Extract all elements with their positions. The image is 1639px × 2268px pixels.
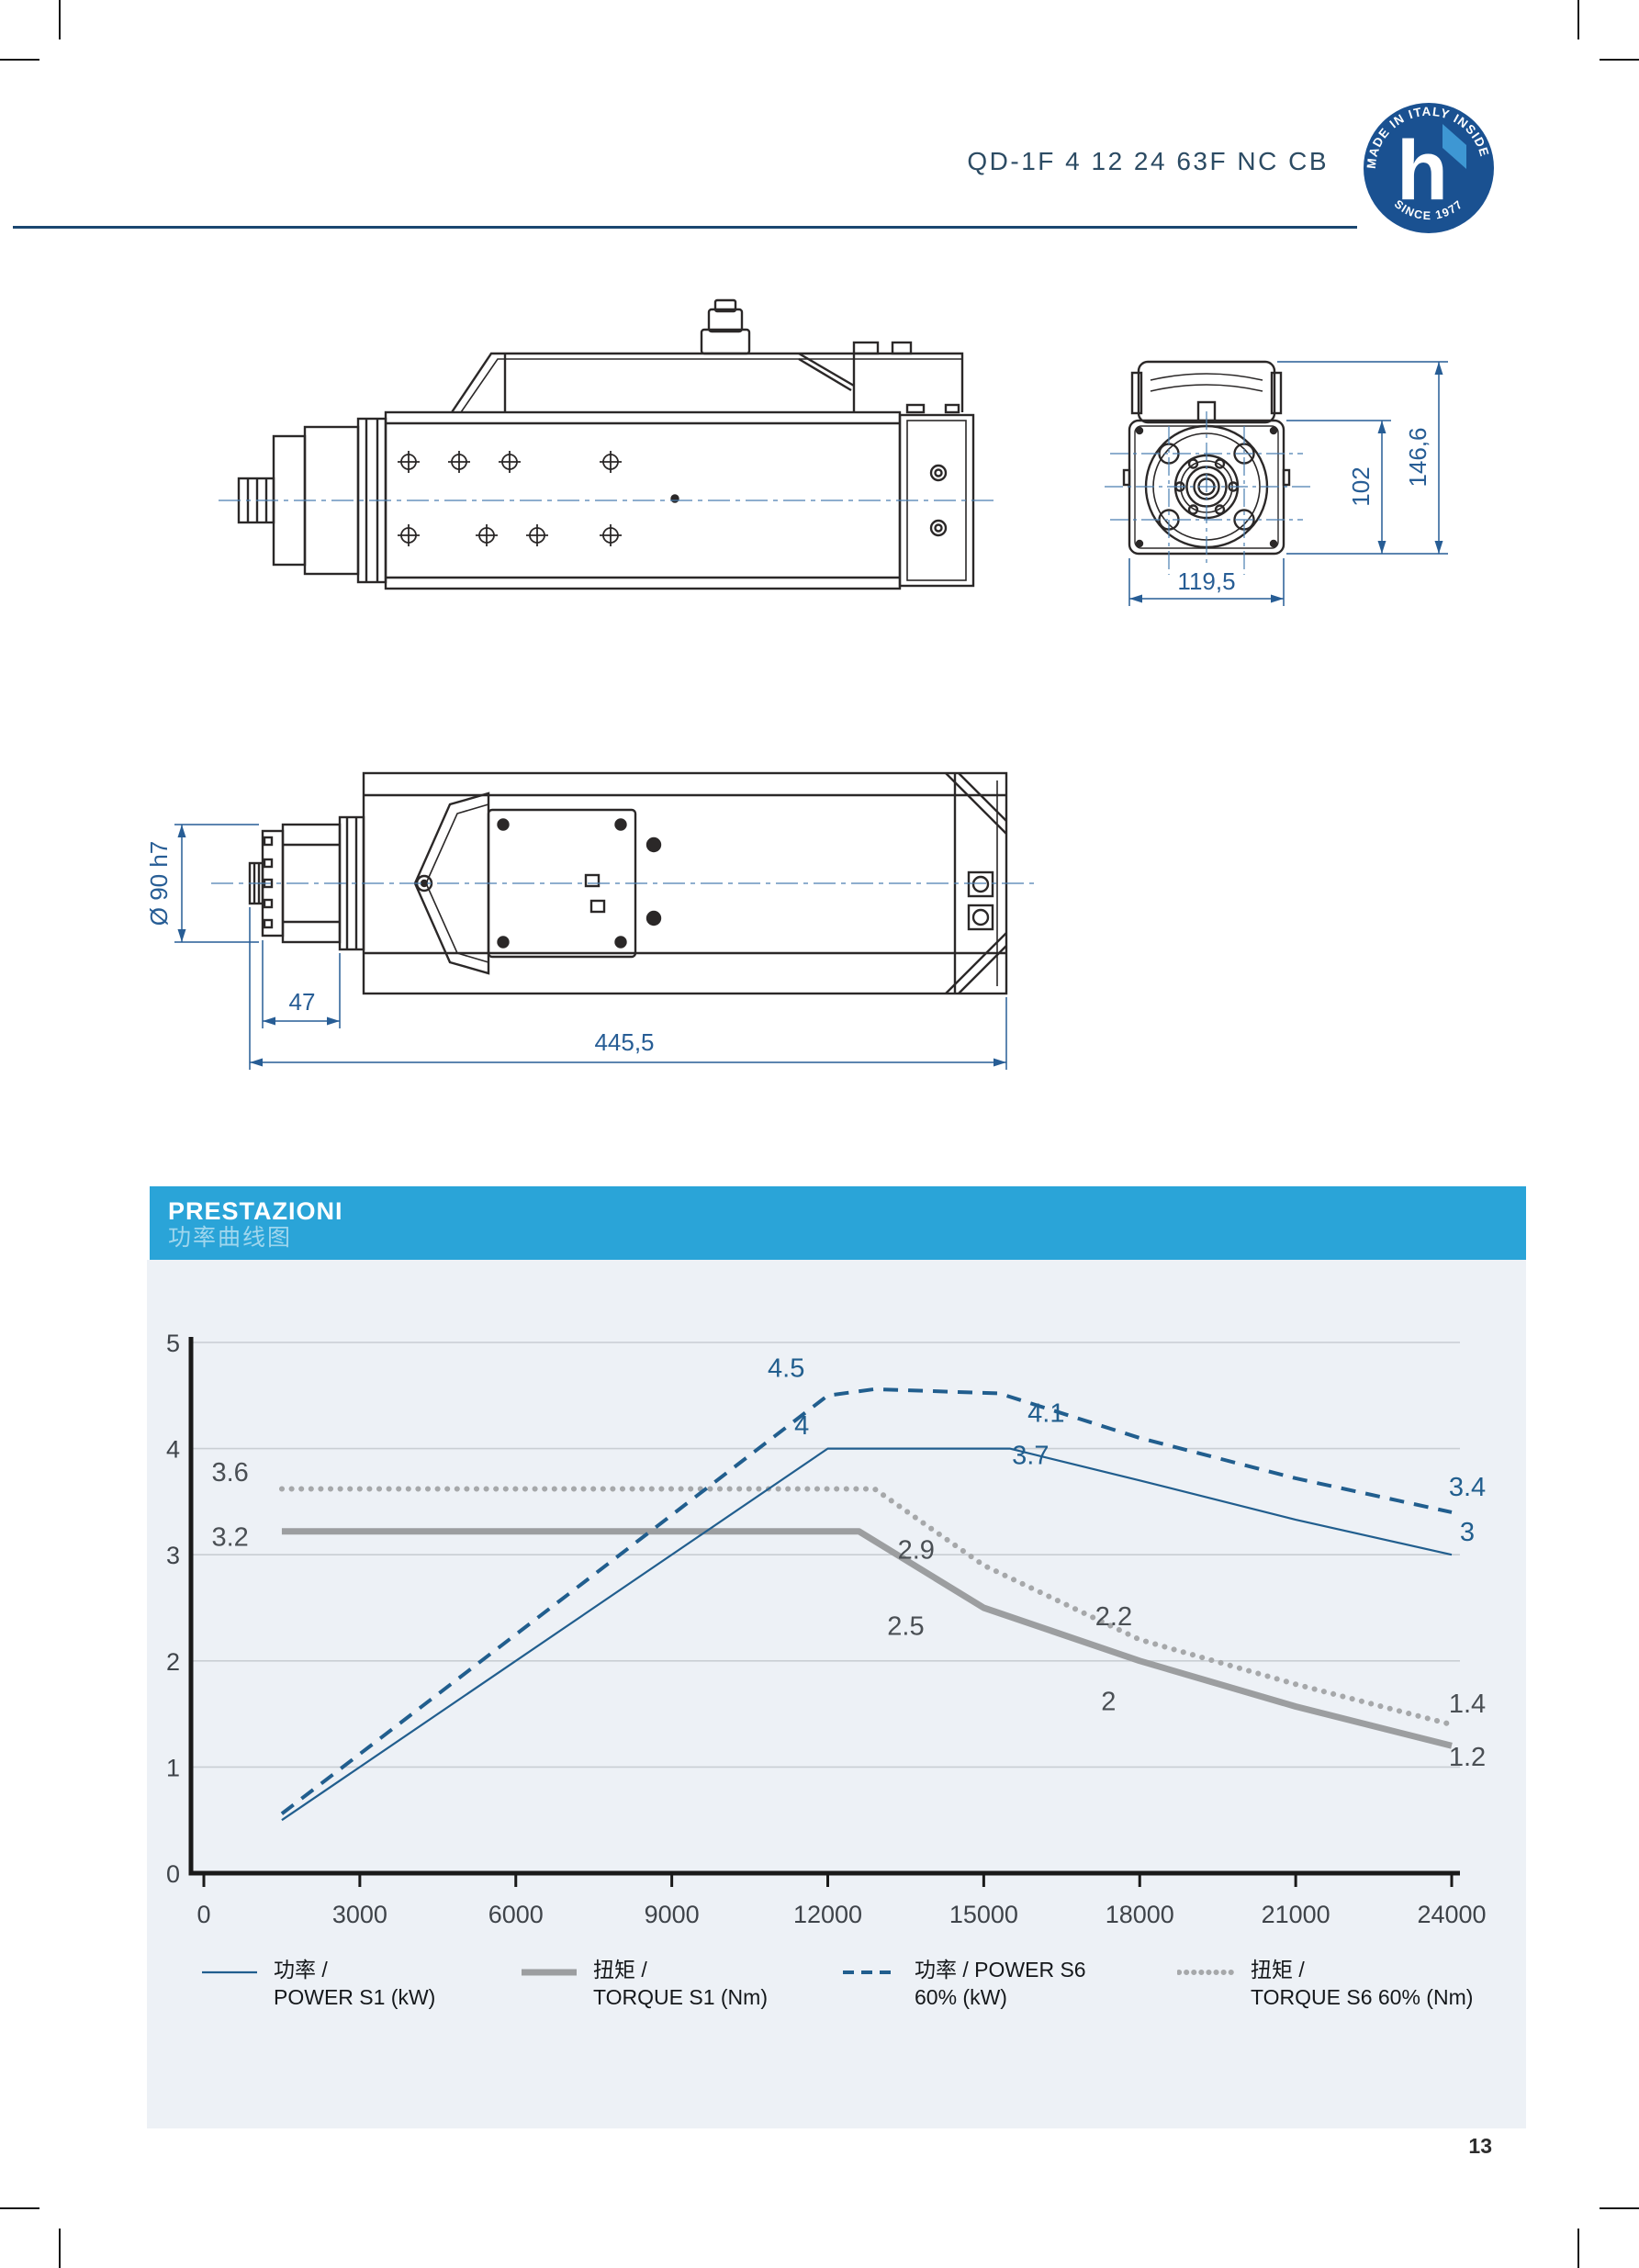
dim-total-length: 445,5: [594, 1028, 654, 1056]
point-label: 2.2: [1095, 1602, 1132, 1632]
side-view-outline: [239, 300, 973, 589]
header-rule: [13, 226, 1357, 229]
crop-mark: [1577, 0, 1579, 39]
point-label: 2.5: [887, 1612, 924, 1642]
y-axis-tick-label: 3: [166, 1542, 180, 1569]
legend-label: 功率 / POWER S6 60% (kW): [915, 1956, 1086, 2011]
power-s1-line-swatch: [200, 1967, 259, 1978]
performance-panel: 0123450300060009000120001500018000210002…: [147, 1260, 1526, 2128]
legend-line1: 功率 /: [274, 1956, 435, 1983]
point-label: 1.4: [1449, 1690, 1486, 1719]
x-axis-tick-label: 24000: [1417, 1901, 1486, 1928]
front-view-drawing: 146,6 102 119,5: [1097, 331, 1483, 634]
y-axis-tick-label: 4: [166, 1436, 180, 1464]
x-axis-tick-label: 3000: [332, 1901, 387, 1928]
legend-line2: TORQUE S1 (Nm): [593, 1983, 768, 2011]
crop-mark: [1600, 59, 1639, 61]
top-view-drawing: Ø 90 h7 47 445,5: [147, 753, 1065, 1083]
x-axis-tick-label: 6000: [488, 1901, 544, 1928]
y-axis-tick-label: 2: [166, 1648, 180, 1676]
crop-mark: [59, 2229, 61, 2268]
series-POWER S6 60% (kW): [282, 1389, 1452, 1813]
series-TORQUE S1 (Nm): [282, 1532, 1452, 1746]
logo-letter: h: [1397, 124, 1448, 218]
legend-line1: 功率 / POWER S6: [915, 1956, 1086, 1983]
series-TORQUE S6 60% (Nm): [282, 1489, 1452, 1725]
torque-s6-line-swatch: [1177, 1967, 1236, 1978]
crop-mark: [59, 0, 61, 39]
x-axis-tick-label: 9000: [645, 1901, 700, 1928]
legend-line2: 60% (kW): [915, 1983, 1086, 2011]
legend-line2: TORQUE S6 60% (Nm): [1251, 1983, 1473, 2011]
point-label: 3.6: [211, 1458, 248, 1488]
point-label: 4.5: [768, 1354, 804, 1384]
y-axis-tick-label: 5: [166, 1330, 180, 1357]
point-label: 3.7: [1012, 1442, 1049, 1471]
legend-item-torque-s1: 扭矩 / TORQUE S1 (Nm): [520, 1956, 768, 2011]
top-view-dimensions: [174, 825, 1006, 1070]
x-axis-tick-label: 15000: [949, 1901, 1018, 1928]
performance-subtitle: 功率曲线图: [168, 1225, 1526, 1251]
point-label: 4.1: [1027, 1398, 1064, 1428]
side-view-drawing: [211, 298, 1001, 611]
point-label: 4: [794, 1411, 809, 1441]
x-axis-tick-label: 18000: [1106, 1901, 1174, 1928]
legend-item-power-s1: 功率 / POWER S1 (kW): [200, 1956, 435, 2011]
point-label: 3.2: [211, 1523, 248, 1553]
dim-shaft-diameter: Ø 90 h7: [147, 841, 173, 926]
power-s6-line-swatch: [841, 1967, 900, 1978]
chart-legend: 功率 / POWER S1 (kW) 扭矩 / TORQUE S1 (Nm) 功…: [147, 1956, 1526, 2066]
x-axis-tick-label: 12000: [793, 1901, 862, 1928]
point-label: 2.9: [898, 1535, 935, 1565]
dim-flange-height: 102: [1347, 466, 1375, 506]
point-label: 3.4: [1449, 1473, 1486, 1502]
point-label: 3: [1460, 1518, 1475, 1547]
series-POWER S1 (kW): [282, 1449, 1452, 1821]
legend-label: 功率 / POWER S1 (kW): [274, 1956, 435, 2011]
dim-total-height: 146,6: [1404, 427, 1431, 487]
legend-item-power-s6: 功率 / POWER S6 60% (kW): [841, 1956, 1086, 2011]
legend-line2: POWER S1 (kW): [274, 1983, 435, 2011]
legend-line1: 扭矩 /: [593, 1956, 768, 1983]
dim-nose-length: 47: [289, 988, 316, 1016]
point-label: 1.2: [1449, 1743, 1486, 1772]
crop-mark: [0, 59, 39, 61]
brand-logo: MADE IN ITALY INSIDE SINCE 1977 h: [1362, 101, 1496, 235]
point-label: 2: [1101, 1688, 1116, 1717]
crop-mark: [1577, 2229, 1579, 2268]
crop-mark: [0, 2207, 39, 2209]
y-axis-tick-label: 0: [166, 1860, 180, 1888]
x-axis-tick-label: 0: [196, 1901, 210, 1928]
page-title: QD-1F 4 12 24 63F NC CB: [967, 147, 1329, 176]
performance-title: PRESTAZIONI: [168, 1197, 1526, 1225]
page-number: 13: [1468, 2134, 1492, 2159]
legend-line1: 扭矩 /: [1251, 1956, 1473, 1983]
legend-item-torque-s6: 扭矩 / TORQUE S6 60% (Nm): [1177, 1956, 1473, 2011]
x-axis-tick-label: 21000: [1262, 1901, 1330, 1928]
performance-header: PRESTAZIONI 功率曲线图: [150, 1186, 1526, 1260]
torque-s1-line-swatch: [520, 1967, 578, 1978]
datasheet-page: QD-1F 4 12 24 63F NC CB MADE IN ITALY IN…: [0, 0, 1639, 2268]
crop-mark: [1600, 2207, 1639, 2209]
legend-label: 扭矩 / TORQUE S6 60% (Nm): [1251, 1956, 1473, 2011]
y-axis-tick-label: 1: [166, 1754, 180, 1781]
legend-label: 扭矩 / TORQUE S1 (Nm): [593, 1956, 768, 2011]
dim-width: 119,5: [1177, 567, 1235, 595]
